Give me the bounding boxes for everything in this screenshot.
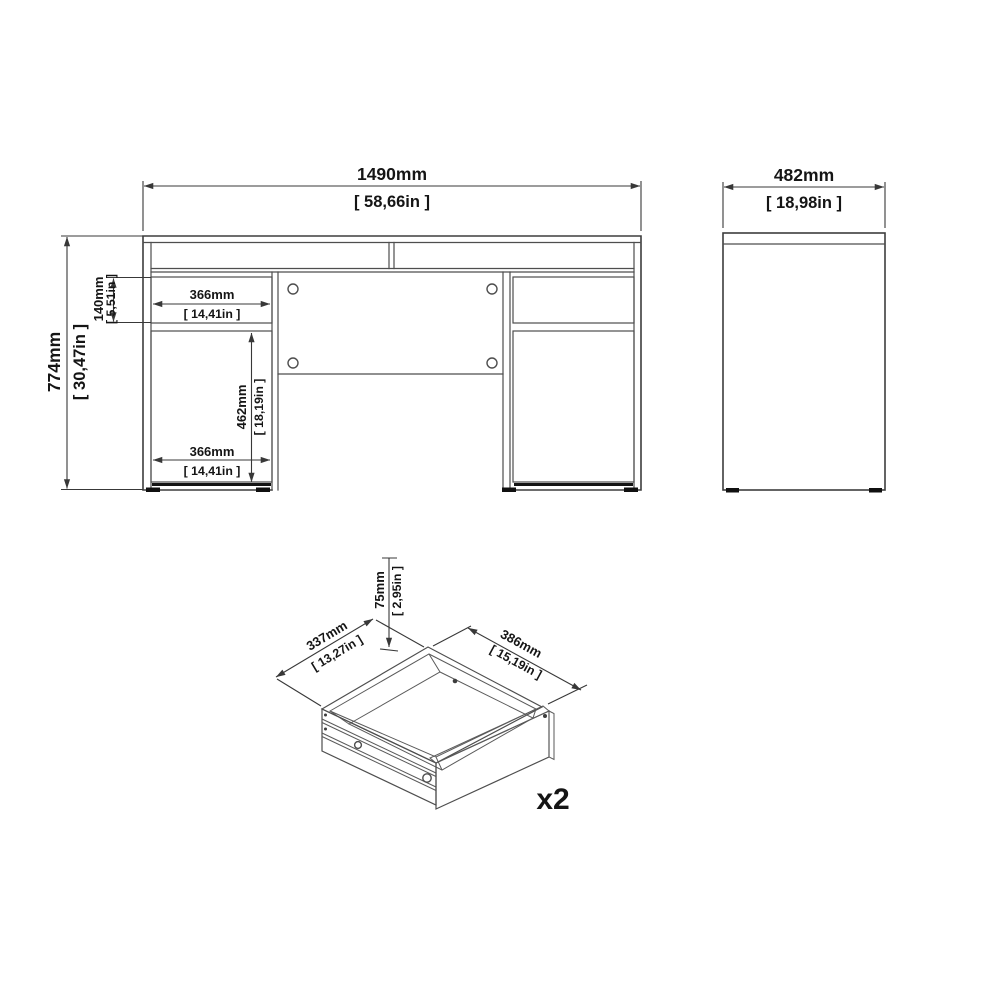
front-width-in-label: [ 58,66in ] <box>354 193 430 211</box>
front-width-mm-label: 1490mm <box>357 164 427 184</box>
drawer-height-dimension: 75mm [ 2,95in ] <box>372 558 404 651</box>
cam-hole-bottom-right <box>487 358 497 368</box>
front-width-dimension: 1490mm [ 58,66in ] <box>143 164 641 231</box>
front-height-dimension: 774mm [ 30,47in ] <box>44 236 143 490</box>
drawer-front-panel <box>436 711 549 809</box>
drawer-height-in-label: [ 2,95in ] <box>390 566 404 616</box>
top-drawer-width-in-label: [ 14,41in ] <box>184 307 241 321</box>
cam-hole-top-left <box>288 284 298 294</box>
slide-rail-screw-hole <box>423 774 431 782</box>
top-drawer-width-mm-label: 366mm <box>190 287 235 302</box>
door-width-in-label: [ 14,41in ] <box>184 464 241 478</box>
drawer-interior-corner-edges <box>330 654 536 770</box>
foot <box>256 488 270 493</box>
back-panel-cam-holes <box>288 284 497 368</box>
side-depth-in-label: [ 18,98in ] <box>766 194 842 212</box>
front-height-in-label: [ 30,47in ] <box>71 324 89 400</box>
right-pedestal-inner-wall <box>503 272 510 490</box>
right-door-front <box>513 331 634 482</box>
slide-rail-screw-hole <box>355 742 362 749</box>
top-band-divider <box>389 243 394 269</box>
top-band-bottom-lines <box>151 269 634 273</box>
foot <box>146 488 160 493</box>
foot <box>502 488 516 493</box>
furniture-dimension-diagram: 1490mm [ 58,66in ] 774mm [ 30,47in ] 140… <box>0 0 1000 1000</box>
top-drawer-width-dimension: 366mm [ 14,41in ] <box>153 287 270 321</box>
rail-end-pin <box>324 728 327 731</box>
technical-drawing-page: 1490mm [ 58,66in ] 774mm [ 30,47in ] 140… <box>0 0 1000 1000</box>
drawer-detail: 75mm [ 2,95in ] 337mm [ 13,27in ] 386mm … <box>276 558 587 816</box>
front-view: 1490mm [ 58,66in ] 774mm [ 30,47in ] 140… <box>44 164 641 492</box>
drawer-height-mm-label: 75mm <box>372 571 387 609</box>
foot <box>869 488 882 493</box>
drawer-quantity-label: x2 <box>536 783 569 816</box>
foot <box>624 488 638 493</box>
side-view: 482mm [ 18,98in ] <box>723 165 885 493</box>
drawer-interior-bottom <box>349 672 533 770</box>
door-width-mm-label: 366mm <box>190 444 235 459</box>
door-width-dimension: 366mm [ 14,41in ] <box>153 444 270 478</box>
top-drawer-height-in-label: [ 5,51in ] <box>104 274 118 324</box>
front-height-mm-label: 774mm <box>44 332 64 392</box>
front-panel-screw-dot <box>543 714 547 718</box>
door-height-in-label: [ 18,19in ] <box>252 379 266 436</box>
right-top-drawer-front <box>513 277 634 323</box>
drawer-left-side-face <box>322 709 436 805</box>
drawer-front-panel-side-face <box>549 711 554 760</box>
rail-end-pin <box>324 714 327 717</box>
foot <box>726 488 739 493</box>
side-depth-mm-label: 482mm <box>774 165 834 185</box>
side-outline <box>723 233 885 490</box>
cam-hole-bottom-left <box>288 358 298 368</box>
top-drawer-height-dimension: 140mm [ 5,51in ] <box>91 274 151 324</box>
side-depth-dimension: 482mm [ 18,98in ] <box>723 165 885 228</box>
left-pedestal-inner-wall <box>272 272 278 490</box>
door-height-mm-label: 462mm <box>234 385 249 430</box>
drawer-rim-inner <box>330 654 536 757</box>
cam-hole-top-right <box>487 284 497 294</box>
interior-back-wall-screw-dot <box>453 679 458 684</box>
drawer-width-dimension: 386mm [ 15,19in ] <box>433 626 587 704</box>
